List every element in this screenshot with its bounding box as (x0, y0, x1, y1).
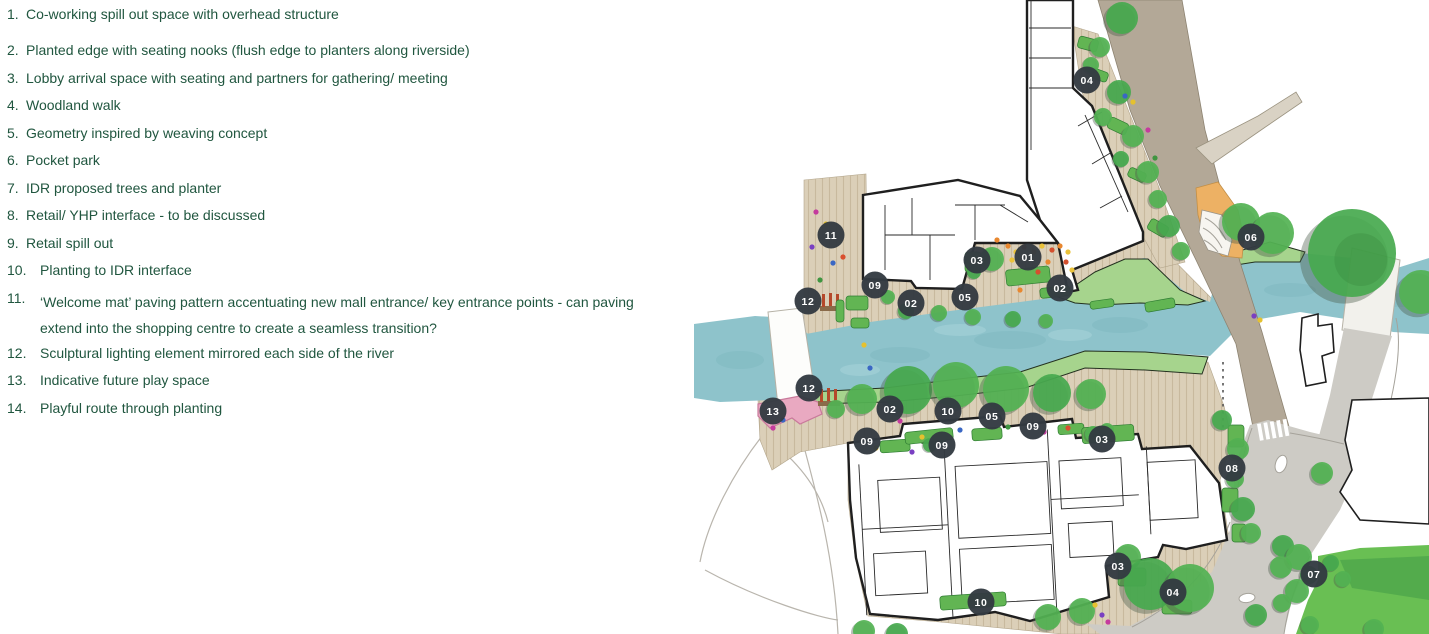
svg-text:03: 03 (1112, 561, 1125, 573)
plan-dot (1257, 317, 1262, 322)
svg-text:02: 02 (905, 298, 918, 310)
svg-text:09: 09 (936, 440, 949, 452)
plan-dot (1092, 602, 1097, 607)
plan-marker-03: 03 (964, 247, 991, 274)
small-building (1300, 314, 1334, 386)
svg-text:03: 03 (1096, 434, 1109, 446)
svg-text:10: 10 (975, 597, 988, 609)
plan-marker-02: 02 (898, 290, 925, 317)
plan-dot (861, 342, 866, 347)
plan-marker-09: 09 (862, 272, 889, 299)
svg-text:08: 08 (1226, 463, 1239, 475)
plan-dot (813, 209, 818, 214)
plan-dot (1099, 612, 1104, 617)
planting-patch (1058, 423, 1085, 435)
svg-text:09: 09 (861, 436, 874, 448)
plan-marker-02: 02 (1047, 275, 1074, 302)
branch-road (1196, 92, 1302, 164)
svg-text:03: 03 (971, 255, 984, 267)
plan-dot (817, 277, 822, 282)
masterplan-map: 0411030102090205120612130210050909090308… (0, 0, 1429, 634)
plan-marker-05: 05 (952, 284, 979, 311)
plan-marker-11: 11 (818, 222, 845, 249)
svg-text:05: 05 (959, 292, 972, 304)
plan-dot (1005, 424, 1010, 429)
plan-dot (770, 425, 775, 430)
plan-dot (1009, 257, 1014, 262)
plan-marker-09: 09 (1020, 413, 1047, 440)
plan-marker-04: 04 (1160, 579, 1187, 606)
plan-marker-02: 02 (877, 396, 904, 423)
plan-marker-13: 13 (760, 398, 787, 425)
svg-text:12: 12 (802, 296, 815, 308)
plan-marker-09: 09 (929, 432, 956, 459)
plan-marker-04: 04 (1074, 67, 1101, 94)
plan-dot (809, 244, 814, 249)
plan-dot (1005, 243, 1010, 248)
svg-text:10: 10 (942, 406, 955, 418)
plan-marker-03: 03 (1105, 553, 1132, 580)
plan-marker-09: 09 (854, 428, 881, 455)
svg-text:02: 02 (1054, 283, 1067, 295)
masterplan-page: 1.Co-working spill out space with overhe… (0, 0, 1429, 634)
plan-marker-12: 12 (795, 288, 822, 315)
planting-patch (851, 318, 869, 328)
plan-marker-08: 08 (1219, 455, 1246, 482)
small-building (1340, 398, 1429, 524)
svg-text:09: 09 (1027, 421, 1040, 433)
svg-text:09: 09 (869, 280, 882, 292)
plan-dot (957, 427, 962, 432)
plan-dot (1122, 93, 1127, 98)
plan-dot (1105, 619, 1110, 624)
plan-dot (1063, 259, 1068, 264)
svg-text:01: 01 (1022, 252, 1035, 264)
svg-text:04: 04 (1167, 587, 1180, 599)
svg-text:04: 04 (1081, 75, 1094, 87)
planting-patch (836, 300, 844, 322)
plan-dot (994, 237, 999, 242)
plan-dot (830, 260, 835, 265)
plan-marker-07: 07 (1301, 561, 1328, 588)
plan-dot (1065, 249, 1070, 254)
plan-marker-06: 06 (1238, 224, 1265, 251)
plan-dot (1035, 269, 1040, 274)
plan-dot (1069, 267, 1074, 272)
svg-text:02: 02 (884, 404, 897, 416)
svg-text:11: 11 (825, 230, 837, 242)
svg-text:12: 12 (803, 383, 816, 395)
svg-text:07: 07 (1308, 569, 1321, 581)
tree-icon (851, 620, 875, 634)
plan-marker-05: 05 (979, 403, 1006, 430)
plan-marker-01: 01 (1015, 244, 1042, 271)
svg-text:13: 13 (767, 406, 780, 418)
plan-dot (1251, 313, 1256, 318)
plan-marker-10: 10 (935, 398, 962, 425)
plan-marker-10: 10 (968, 589, 995, 616)
plan-dot (1057, 243, 1062, 248)
plan-dot (1049, 247, 1054, 252)
plan-dot (1065, 425, 1070, 430)
tree-icon (884, 623, 908, 634)
plan-dot (867, 365, 872, 370)
plan-marker-03: 03 (1089, 426, 1116, 453)
plan-dot (840, 254, 845, 259)
plan-dot (1045, 259, 1050, 264)
plan-dot (1039, 243, 1044, 248)
plan-dot (1130, 99, 1135, 104)
plan-dot (1145, 127, 1150, 132)
plan-dot (1152, 155, 1157, 160)
plan-dot (1017, 287, 1022, 292)
planting-patch (846, 296, 868, 310)
plan-dot (909, 449, 914, 454)
svg-text:06: 06 (1245, 232, 1258, 244)
plan-dot (919, 434, 924, 439)
plan-marker-12: 12 (796, 375, 823, 402)
svg-text:05: 05 (986, 411, 999, 423)
planting-patch (972, 427, 1003, 441)
